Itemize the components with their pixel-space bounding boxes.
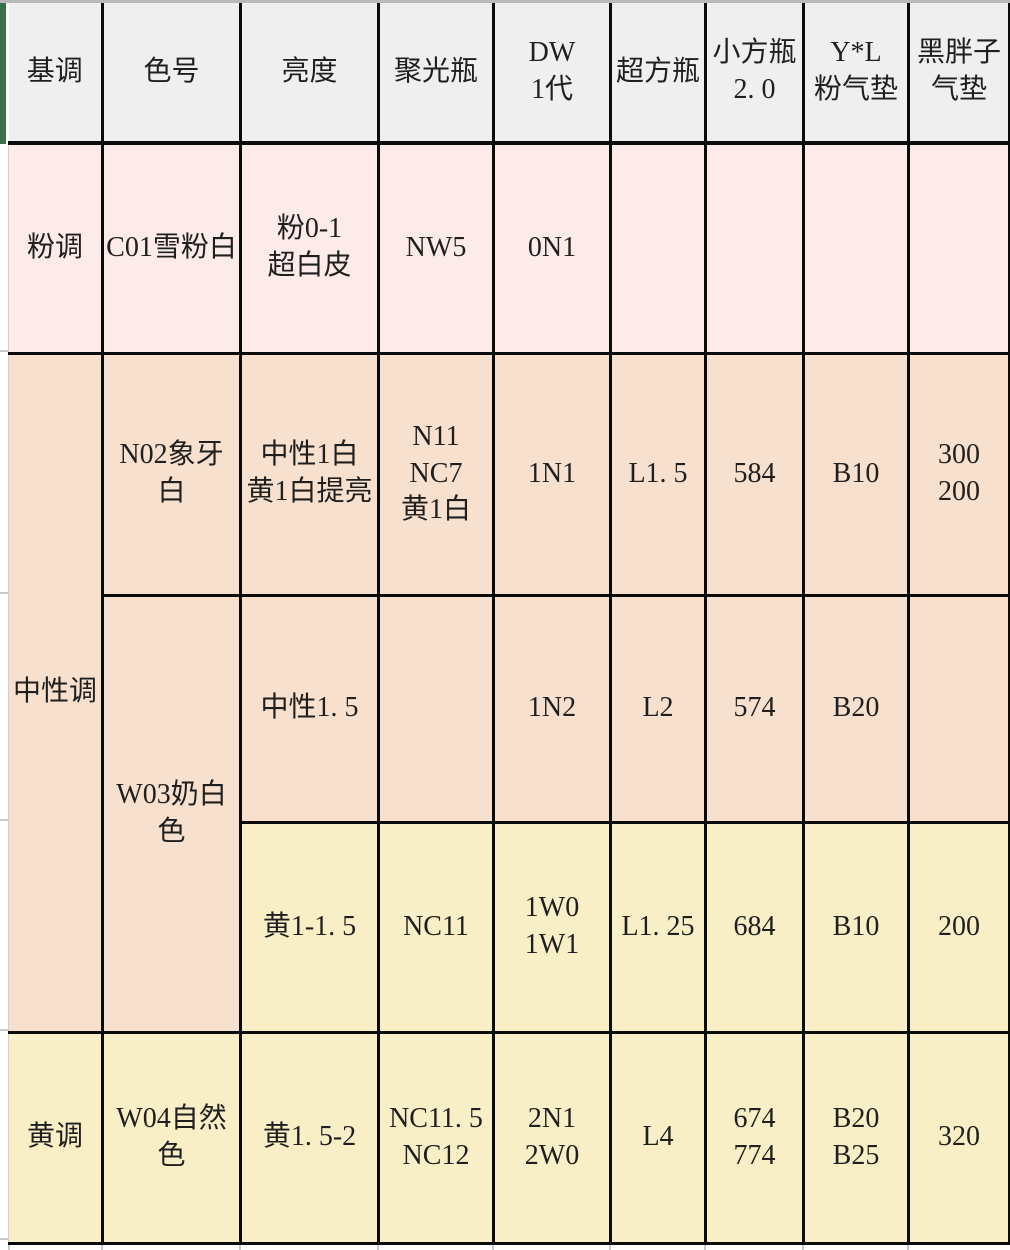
cell-r1-black-fatty-cushion[interactable] (909, 143, 1010, 353)
gridline-tick (0, 350, 8, 352)
cell-r5-black-fatty-cushion[interactable]: 320 (909, 1032, 1010, 1243)
gridline-tick (0, 1238, 8, 1240)
cell-r4-spotlight-bottle[interactable]: NC11 (379, 822, 494, 1032)
header-row: 基调 色号 亮度 聚光瓶 DW 1代 超方瓶 小方瓶 2. 0 Y*L 粉气垫 … (9, 3, 1010, 143)
cell-r1-dw-gen1[interactable]: 0N1 (494, 143, 611, 353)
cell-r4-dw-gen1[interactable]: 1W0 1W1 (494, 822, 611, 1032)
cell-r3-super-square-bottle[interactable]: L2 (611, 595, 706, 822)
cell-r5-brightness[interactable]: 黄1. 5-2 (241, 1032, 379, 1243)
cell-r2-brightness[interactable]: 中性1白 黄1白提亮 (241, 353, 379, 595)
cell-r1-small-square-bottle[interactable] (706, 143, 804, 353)
cell-r1-brightness[interactable]: 粉0-1 超白皮 (241, 143, 379, 353)
row-pink-tone: 粉调 C01雪粉白 粉0-1 超白皮 NW5 0N1 (9, 143, 1010, 353)
cell-r2-color-code[interactable]: N02象牙白 (103, 353, 241, 595)
cell-r5-color-code[interactable]: W04自然色 (103, 1032, 241, 1243)
cell-r2-yl-powder-cushion[interactable]: B10 (804, 353, 909, 595)
row-neutral-w03-a: W03奶白色 中性1. 5 1N2 L2 574 B20 (9, 595, 1010, 822)
cell-r3-brightness[interactable]: 中性1. 5 (241, 595, 379, 822)
cell-r2-dw-gen1[interactable]: 1N1 (494, 353, 611, 595)
cell-r5-yl-powder-cushion[interactable]: B20 B25 (804, 1032, 909, 1243)
cell-r3-yl-powder-cushion[interactable]: B20 (804, 595, 909, 822)
cell-r3-dw-gen1[interactable]: 1N2 (494, 595, 611, 822)
header-left-green-strip (0, 3, 6, 144)
header-cell-black-fatty-cushion[interactable]: 黑胖子 气垫 (909, 3, 1010, 143)
gridline-tick (0, 819, 8, 821)
cell-r1-super-square-bottle[interactable] (611, 143, 706, 353)
gridline-tick (8, 1244, 10, 1250)
cell-r2-black-fatty-cushion[interactable]: 300 200 (909, 353, 1010, 595)
cell-r1-yl-powder-cushion[interactable] (804, 143, 909, 353)
gridline-tick (802, 1244, 804, 1250)
header-cell-spotlight-bottle[interactable]: 聚光瓶 (379, 3, 494, 143)
cell-r4-brightness[interactable]: 黄1-1. 5 (241, 822, 379, 1032)
cell-r5-small-square-bottle[interactable]: 674 774 (706, 1032, 804, 1243)
shade-match-table: 基调 色号 亮度 聚光瓶 DW 1代 超方瓶 小方瓶 2. 0 Y*L 粉气垫 … (8, 3, 1010, 1245)
cell-r5-super-square-bottle[interactable]: L4 (611, 1032, 706, 1243)
spreadsheet-region: 基调 色号 亮度 聚光瓶 DW 1代 超方瓶 小方瓶 2. 0 Y*L 粉气垫 … (0, 0, 1010, 1250)
cell-r5-base-tone[interactable]: 黄调 (9, 1032, 103, 1243)
gridline-tick (0, 1029, 8, 1031)
header-cell-base-tone[interactable]: 基调 (9, 3, 103, 143)
gridline-tick (377, 1244, 379, 1250)
gridline-tick (492, 1244, 494, 1250)
row-yellow-tone: 黄调 W04自然色 黄1. 5-2 NC11. 5 NC12 2N1 2W0 L… (9, 1032, 1010, 1243)
row-neutral-n02: 中性调 N02象牙白 中性1白 黄1白提亮 N11 NC7 黄1白 1N1 L1… (9, 353, 1010, 595)
cell-r4-black-fatty-cushion[interactable]: 200 (909, 822, 1010, 1032)
left-gridline-sliver (0, 144, 8, 1250)
gridline-tick (101, 1244, 103, 1250)
cell-neutral-tone-span[interactable]: 中性调 (9, 353, 103, 1032)
cell-r1-color-code[interactable]: C01雪粉白 (103, 143, 241, 353)
cell-r3-small-square-bottle[interactable]: 574 (706, 595, 804, 822)
header-cell-color-code[interactable]: 色号 (103, 3, 241, 143)
header-cell-yl-powder-cushion[interactable]: Y*L 粉气垫 (804, 3, 909, 143)
header-cell-small-square-bottle-2-0[interactable]: 小方瓶 2. 0 (706, 3, 804, 143)
header-cell-super-square-bottle[interactable]: 超方瓶 (611, 3, 706, 143)
cell-r1-base-tone[interactable]: 粉调 (9, 143, 103, 353)
gridline-tick (704, 1244, 706, 1250)
cell-r4-super-square-bottle[interactable]: L1. 25 (611, 822, 706, 1032)
cell-r4-yl-powder-cushion[interactable]: B10 (804, 822, 909, 1032)
gridline-tick (0, 592, 8, 594)
cell-r1-spotlight-bottle[interactable]: NW5 (379, 143, 494, 353)
cell-r2-spotlight-bottle[interactable]: N11 NC7 黄1白 (379, 353, 494, 595)
cell-w03-color-code-span[interactable]: W03奶白色 (103, 595, 241, 1032)
cell-r2-super-square-bottle[interactable]: L1. 5 (611, 353, 706, 595)
gridline-tick (609, 1244, 611, 1250)
cell-r3-spotlight-bottle[interactable] (379, 595, 494, 822)
cell-r2-small-square-bottle[interactable]: 584 (706, 353, 804, 595)
header-cell-brightness[interactable]: 亮度 (241, 3, 379, 143)
cell-r5-dw-gen1[interactable]: 2N1 2W0 (494, 1032, 611, 1243)
gridline-tick (907, 1244, 909, 1250)
cell-r5-spotlight-bottle[interactable]: NC11. 5 NC12 (379, 1032, 494, 1243)
header-cell-dw-gen1[interactable]: DW 1代 (494, 3, 611, 143)
gridline-tick (239, 1244, 241, 1250)
cell-r4-small-square-bottle[interactable]: 684 (706, 822, 804, 1032)
cell-r3-black-fatty-cushion[interactable] (909, 595, 1010, 822)
